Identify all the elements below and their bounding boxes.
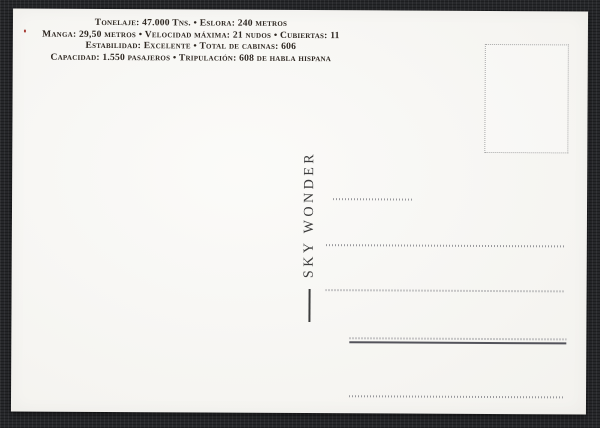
address-line-4 bbox=[349, 337, 566, 340]
ship-name-vertical: SKY WONDER bbox=[300, 150, 319, 322]
spec-line-beam: Manga: 29,50 metros • Velocidad máxima: … bbox=[13, 29, 369, 42]
specs-block: Tonelaje: 47.000 Tns. • Eslora: 240 metr… bbox=[13, 17, 369, 65]
ship-name-text: SKY WONDER bbox=[302, 151, 319, 278]
address-line-4-solid-rule bbox=[349, 341, 566, 344]
address-line-2 bbox=[326, 244, 565, 247]
address-line-3 bbox=[326, 289, 565, 292]
address-line-1 bbox=[333, 198, 413, 200]
stamp-box bbox=[484, 44, 569, 153]
postcard: Tonelaje: 47.000 Tns. • Eslora: 240 metr… bbox=[11, 8, 588, 414]
scan-background: { "theme": { "bg": "#27282b", "card_bg":… bbox=[0, 0, 600, 428]
ship-name-dash bbox=[308, 289, 310, 322]
spec-line-capacity: Capacidad: 1.550 pasajeros • Tripulación… bbox=[13, 52, 369, 65]
address-line-5 bbox=[349, 395, 564, 398]
paper-speck bbox=[24, 30, 26, 33]
